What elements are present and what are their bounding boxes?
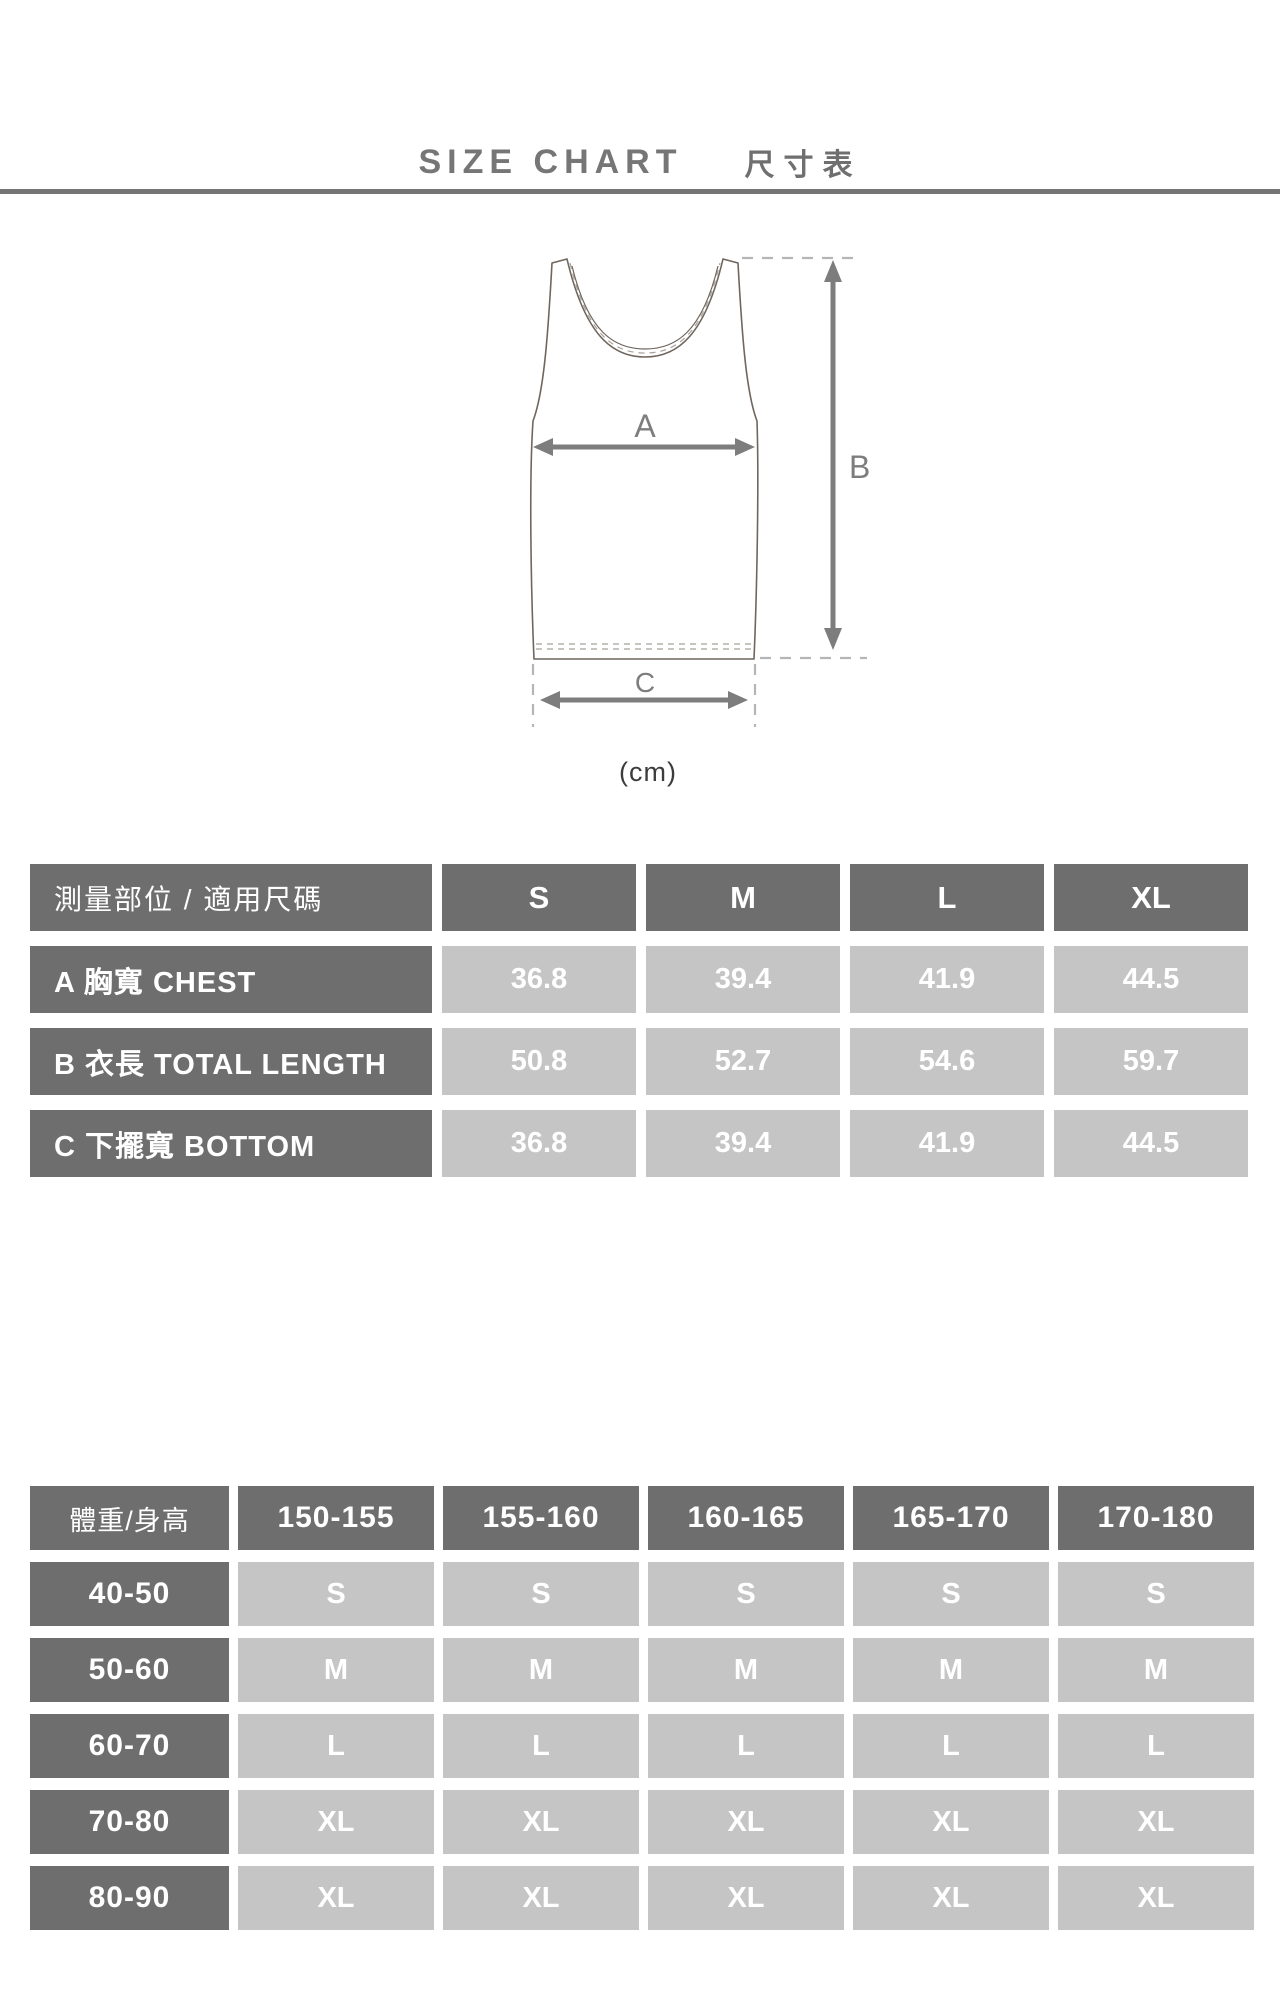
fit-40-50-c3: S — [648, 1562, 844, 1626]
arrow-b-bottom-head — [824, 628, 842, 650]
label-a: A — [634, 408, 656, 444]
fit-40-50-c5: S — [1058, 1562, 1254, 1626]
bottom-l: 41.9 — [850, 1110, 1044, 1177]
label-c: C — [635, 667, 655, 698]
title-chinese: 尺寸表 — [745, 140, 862, 184]
size-header-xl: XL — [1054, 864, 1248, 931]
size-chart-page: SIZE CHART 尺寸表 A B — [0, 0, 1280, 1991]
fit-70-80-c5: XL — [1058, 1790, 1254, 1854]
arrow-a-right-head — [735, 438, 755, 456]
hem-stitch-dashed — [536, 644, 752, 649]
fit-70-80-c4: XL — [853, 1790, 1049, 1854]
weight-label-70-80: 70-80 — [30, 1790, 229, 1854]
bottom-m: 39.4 — [646, 1110, 840, 1177]
row-label-chest: A 胸寬 CHEST — [30, 946, 432, 1013]
length-xl: 59.7 — [1054, 1028, 1248, 1095]
fit-80-90-c3: XL — [648, 1866, 844, 1930]
weight-label-50-60: 50-60 — [30, 1638, 229, 1702]
weight-label-80-90: 80-90 — [30, 1866, 229, 1930]
fit-80-90-c4: XL — [853, 1866, 1049, 1930]
neckline-binding-curve — [572, 266, 718, 349]
chest-l: 41.9 — [850, 946, 1044, 1013]
row-label-bottom: C 下擺寬 BOTTOM — [30, 1110, 432, 1177]
fit-80-90-c2: XL — [443, 1866, 639, 1930]
chest-s: 36.8 — [442, 946, 636, 1013]
fit-70-80-c1: XL — [238, 1790, 434, 1854]
bottom-xl: 44.5 — [1054, 1110, 1248, 1177]
neckline-stitch-dashed — [570, 263, 720, 353]
chest-xl: 44.5 — [1054, 946, 1248, 1013]
weight-label-60-70: 60-70 — [30, 1714, 229, 1778]
fit-50-60-c2: M — [443, 1638, 639, 1702]
length-m: 52.7 — [646, 1028, 840, 1095]
arrow-c-right-head — [728, 691, 748, 709]
fit-50-60-c5: M — [1058, 1638, 1254, 1702]
tank-top-outline — [531, 259, 758, 659]
label-b: B — [849, 449, 870, 485]
measurement-header-label: 測量部位 / 適用尺碼 — [30, 864, 432, 931]
fit-80-90-c1: XL — [238, 1866, 434, 1930]
height-header-150-155: 150-155 — [238, 1486, 434, 1550]
height-header-165-170: 165-170 — [853, 1486, 1049, 1550]
unit-label: (cm) — [619, 757, 677, 787]
fit-50-60-c3: M — [648, 1638, 844, 1702]
fit-table: 體重/身高 150-155 155-160 160-165 165-170 17… — [30, 1486, 1254, 1930]
tank-top-diagram: A B C (cm) — [380, 190, 900, 790]
fit-40-50-c4: S — [853, 1562, 1049, 1626]
measurement-guide-dashes — [533, 258, 867, 727]
title-english: SIZE CHART — [419, 143, 683, 182]
length-l: 54.6 — [850, 1028, 1044, 1095]
fit-60-70-c1: L — [238, 1714, 434, 1778]
height-header-170-180: 170-180 — [1058, 1486, 1254, 1550]
weight-label-40-50: 40-50 — [30, 1562, 229, 1626]
height-header-155-160: 155-160 — [443, 1486, 639, 1550]
arrow-a-left-head — [533, 438, 553, 456]
page-title: SIZE CHART 尺寸表 — [0, 142, 1280, 182]
fit-70-80-c2: XL — [443, 1790, 639, 1854]
fit-50-60-c1: M — [238, 1638, 434, 1702]
fit-70-80-c3: XL — [648, 1790, 844, 1854]
length-s: 50.8 — [442, 1028, 636, 1095]
size-header-l: L — [850, 864, 1044, 931]
arrow-c-left-head — [540, 691, 560, 709]
fit-60-70-c2: L — [443, 1714, 639, 1778]
size-header-m: M — [646, 864, 840, 931]
bottom-s: 36.8 — [442, 1110, 636, 1177]
fit-40-50-c1: S — [238, 1562, 434, 1626]
fit-80-90-c5: XL — [1058, 1866, 1254, 1930]
fit-60-70-c3: L — [648, 1714, 844, 1778]
fit-40-50-c2: S — [443, 1562, 639, 1626]
fit-corner-label: 體重/身高 — [30, 1486, 229, 1550]
row-label-total-length: B 衣長 TOTAL LENGTH — [30, 1028, 432, 1095]
fit-60-70-c4: L — [853, 1714, 1049, 1778]
measurement-table: 測量部位 / 適用尺碼 S M L XL A 胸寬 CHEST 36.8 39.… — [30, 864, 1248, 1177]
size-header-s: S — [442, 864, 636, 931]
chest-m: 39.4 — [646, 946, 840, 1013]
fit-60-70-c5: L — [1058, 1714, 1254, 1778]
fit-50-60-c4: M — [853, 1638, 1049, 1702]
arrow-b-length — [824, 260, 842, 650]
arrow-b-top-head — [824, 260, 842, 282]
height-header-160-165: 160-165 — [648, 1486, 844, 1550]
